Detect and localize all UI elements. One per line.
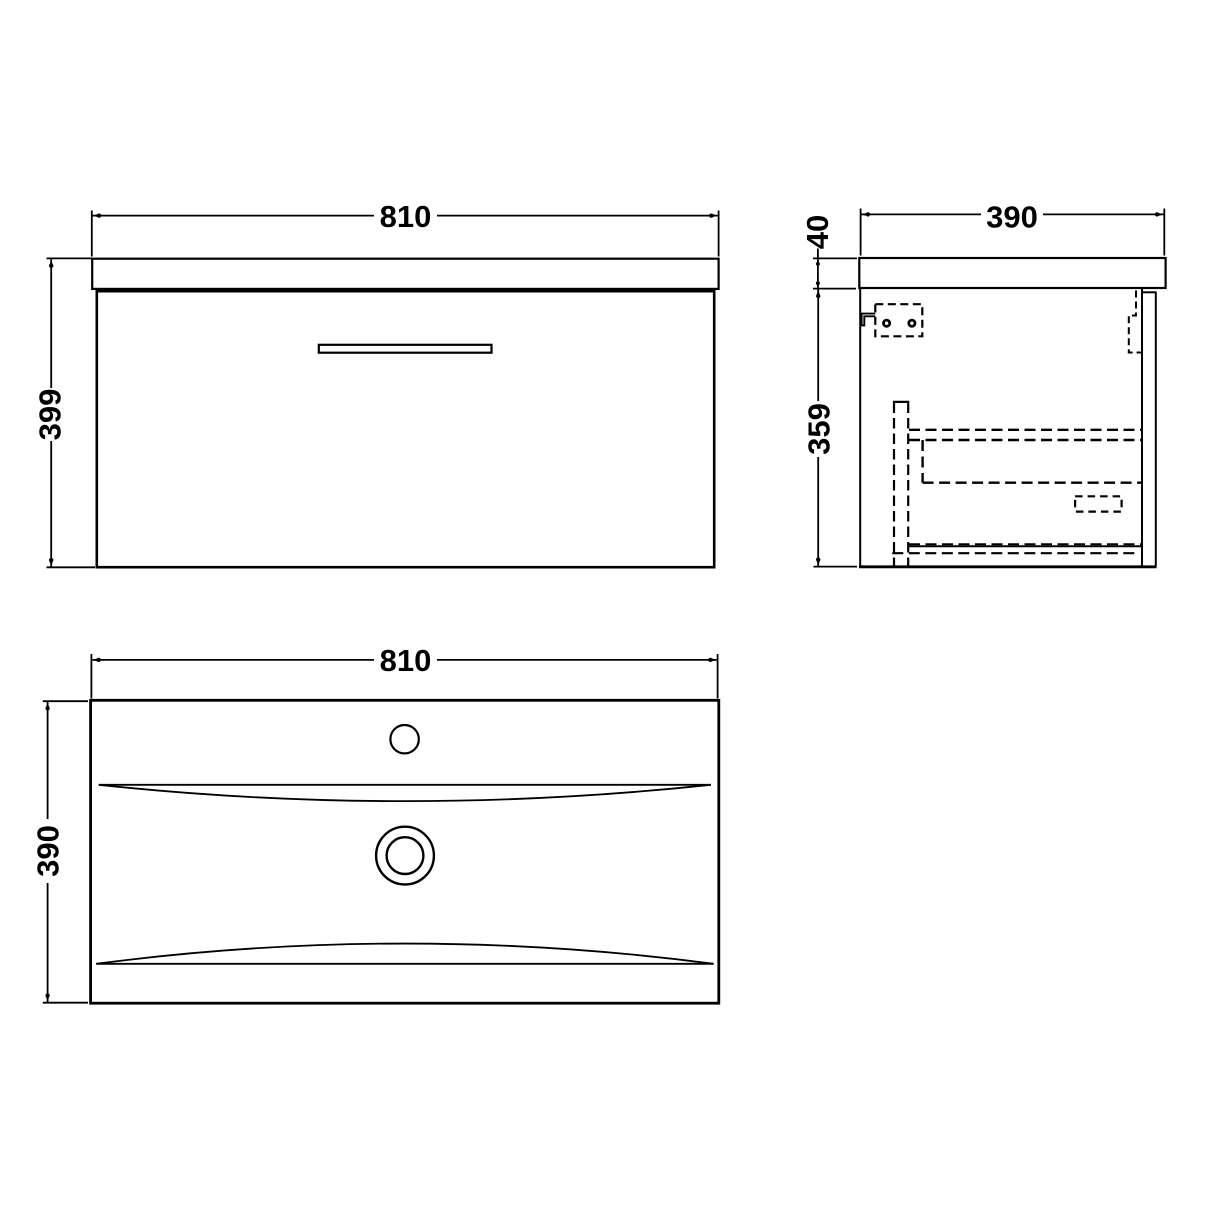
svg-text:810: 810 (380, 199, 432, 234)
svg-text:40: 40 (800, 215, 835, 249)
svg-text:399: 399 (32, 389, 67, 441)
svg-text:359: 359 (801, 403, 836, 455)
svg-text:810: 810 (380, 643, 432, 678)
svg-text:390: 390 (986, 200, 1038, 235)
svg-text:390: 390 (30, 825, 65, 877)
